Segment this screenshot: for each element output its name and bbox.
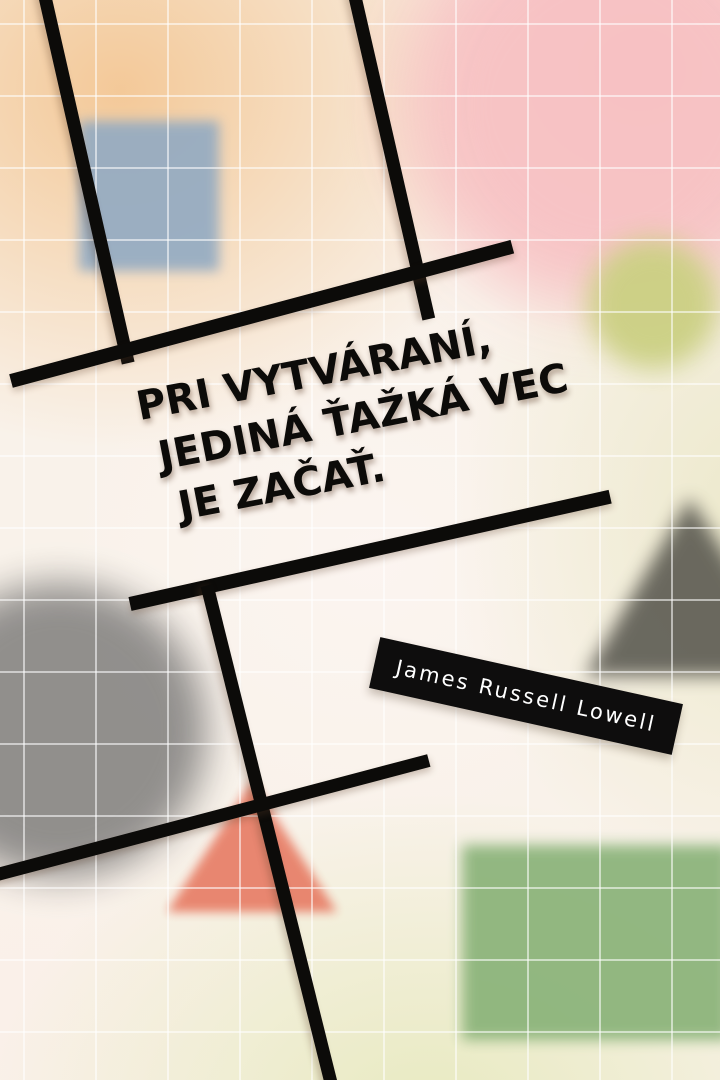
- grid-overlay: [0, 0, 720, 1080]
- quote-poster: PRI VYTVÁRANÍ, JEDINÁ ŤAŽKÁ VEC JE ZAČAŤ…: [0, 0, 720, 1080]
